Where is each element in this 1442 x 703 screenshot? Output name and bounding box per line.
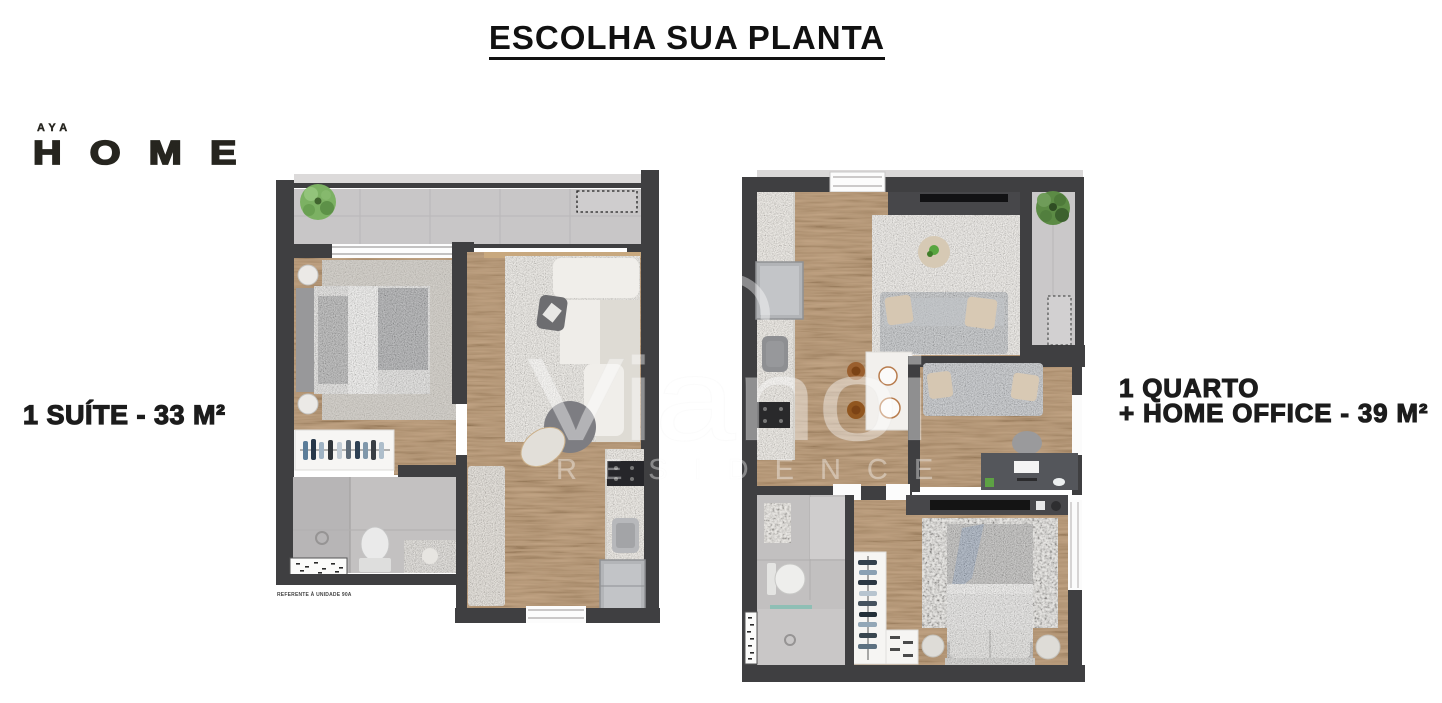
svg-text:Vianoi: Vianoi <box>527 334 931 466</box>
svg-text:RESIDENCE: RESIDENCE <box>556 454 959 486</box>
